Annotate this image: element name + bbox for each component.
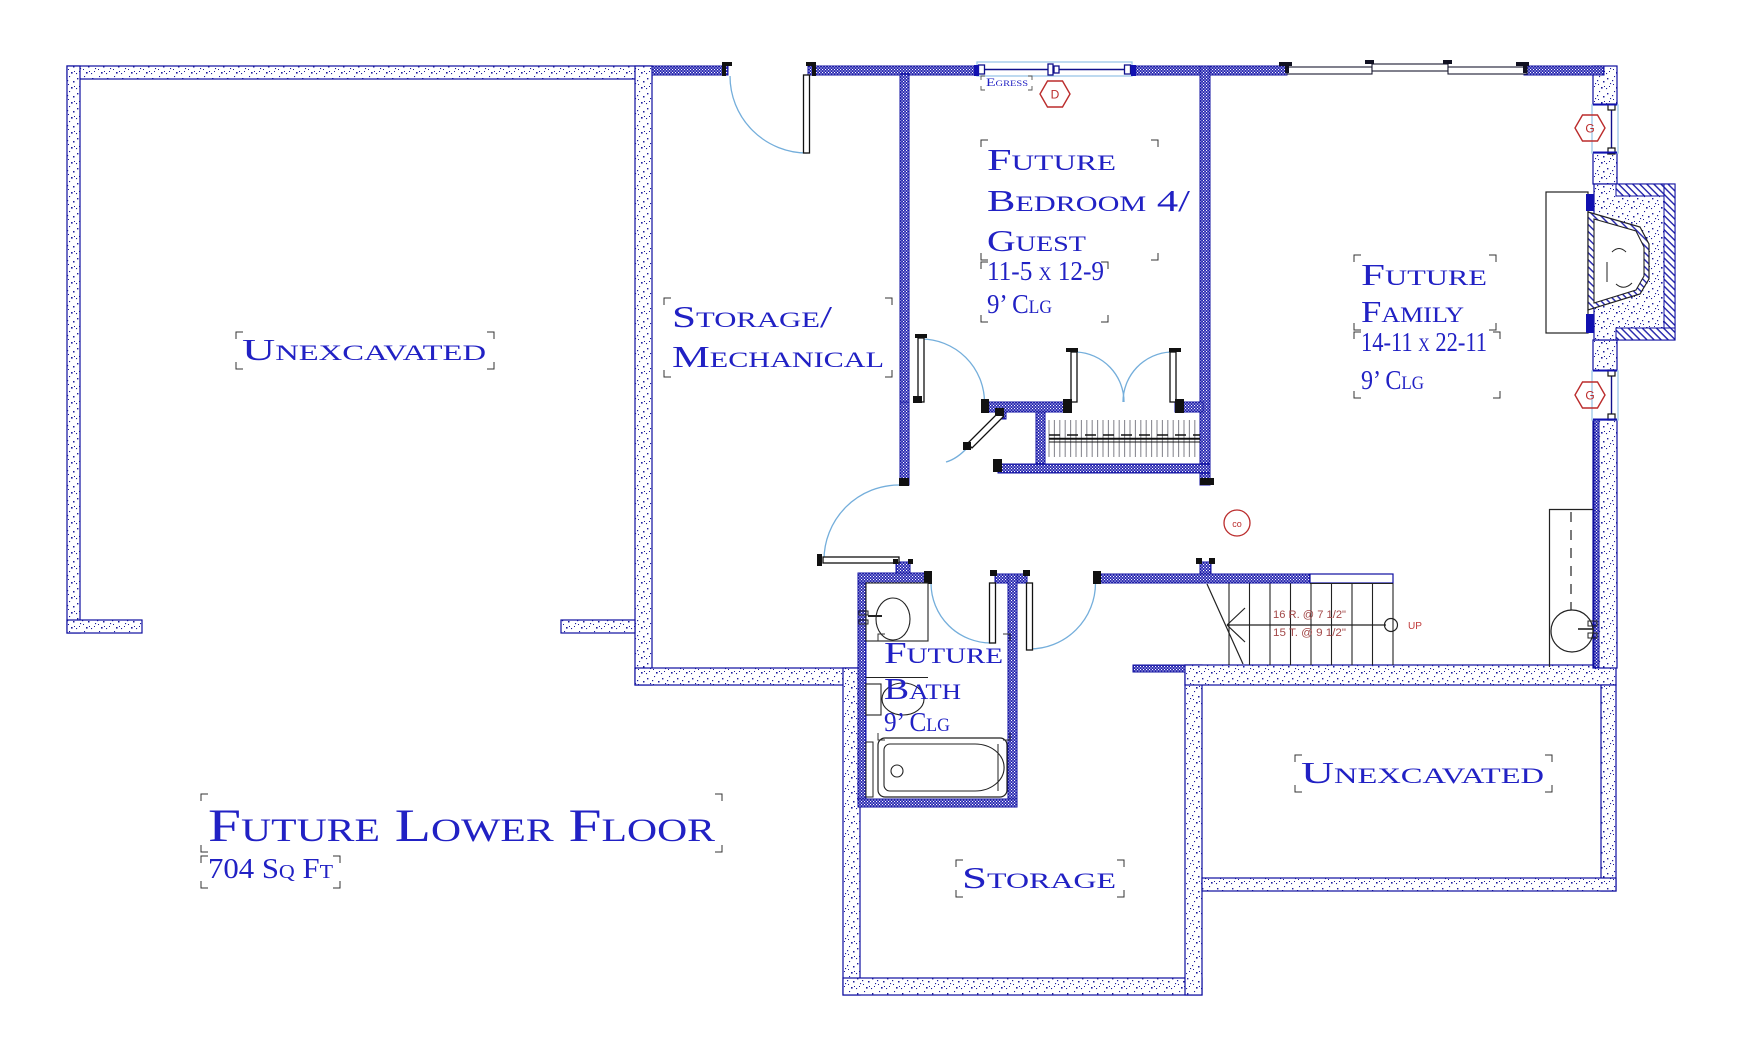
svg-text:Storage/: Storage/ (672, 299, 833, 334)
svg-text:G: G (1585, 388, 1594, 402)
svg-text:Mechanical: Mechanical (672, 339, 884, 374)
svg-text:11-5 x 12-9: 11-5 x 12-9 (987, 256, 1104, 286)
svg-text:UP: UP (1408, 621, 1422, 632)
svg-text:Storage: Storage (962, 860, 1116, 895)
svg-text:Egress: Egress (986, 75, 1028, 89)
svg-text:Bath: Bath (884, 671, 961, 706)
svg-text:Bedroom 4/: Bedroom 4/ (987, 183, 1191, 218)
svg-text:Future: Future (987, 142, 1116, 177)
svg-text:15 T. @ 9 1/2": 15 T. @ 9 1/2" (1273, 627, 1346, 639)
svg-text:Future Lower Floor: Future Lower Floor (208, 800, 715, 852)
svg-text:704 Sq Ft: 704 Sq Ft (208, 854, 333, 885)
svg-text:9’ Clg: 9’ Clg (884, 707, 950, 737)
svg-text:Family: Family (1361, 294, 1464, 329)
svg-text:Future: Future (884, 635, 1003, 670)
svg-text:9’ Clg: 9’ Clg (1361, 365, 1424, 395)
svg-text:14-11 x 22-11: 14-11 x 22-11 (1361, 327, 1487, 357)
svg-text:Unexcavated: Unexcavated (242, 332, 486, 367)
svg-text:Future: Future (1361, 257, 1487, 292)
svg-text:D: D (1051, 88, 1060, 102)
svg-text:G: G (1585, 121, 1594, 135)
svg-text:Guest: Guest (987, 223, 1087, 258)
svg-text:co: co (1232, 519, 1242, 529)
svg-text:Unexcavated: Unexcavated (1301, 755, 1544, 790)
svg-text:9’ Clg: 9’ Clg (987, 289, 1052, 319)
svg-text:16 R. @ 7 1/2": 16 R. @ 7 1/2" (1273, 609, 1346, 621)
